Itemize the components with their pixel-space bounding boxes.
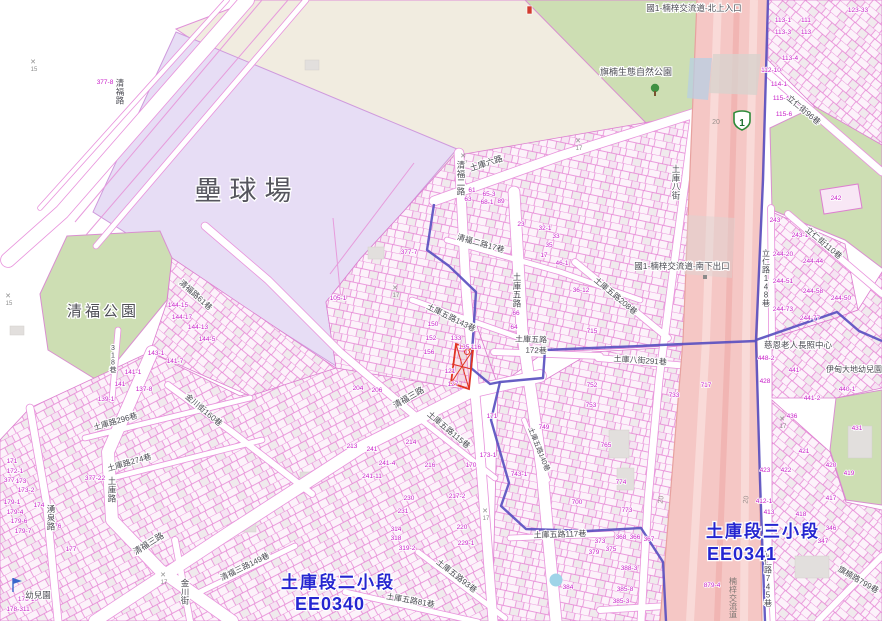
parcel-number: 448-2 bbox=[758, 355, 775, 362]
street-label-vertical: 清福二路 bbox=[457, 160, 466, 197]
map-container: 1202020楠梓交流道377-8113-1111113-3113113-411… bbox=[0, 0, 882, 621]
parcel-number: 418 bbox=[796, 511, 807, 518]
parcel-number: 171 bbox=[7, 458, 18, 465]
parcel-number: 32-1 bbox=[538, 225, 551, 232]
parcel-number: 220 bbox=[457, 524, 468, 531]
street-label-vertical: 湧泉路 bbox=[47, 504, 56, 532]
parcel-number: 368 bbox=[616, 534, 627, 541]
parcel-number: 173-2 bbox=[18, 487, 35, 494]
parcel-number: 229-1 bbox=[458, 540, 475, 547]
parcel-number: 243 bbox=[770, 217, 781, 224]
parcel-number: 765 bbox=[601, 442, 612, 449]
parcel-number: 428 bbox=[760, 378, 771, 385]
parcel-number: 749 bbox=[539, 424, 550, 431]
parcel-number: 141-7 bbox=[167, 358, 184, 365]
parcel-number: 373 bbox=[595, 538, 606, 545]
parcel-number: 423 bbox=[760, 467, 771, 474]
parcel-number: 385-3 bbox=[613, 598, 630, 605]
parcel-number: 422 bbox=[781, 467, 792, 474]
parcel-number: 179-6 bbox=[11, 518, 28, 525]
parcel-number: 377-7 bbox=[401, 249, 418, 256]
parcel-number: 66 bbox=[512, 310, 520, 317]
parcel-number: 244-58 bbox=[803, 288, 824, 295]
parcel-number: 173-1 bbox=[480, 452, 497, 459]
parcel-number: 17 bbox=[540, 252, 548, 259]
parcel-number: 733 bbox=[669, 392, 680, 399]
parcel-number: 178-311 bbox=[6, 606, 30, 613]
parcel-number: 879-4 bbox=[704, 582, 721, 589]
parcel-number: 419 bbox=[844, 470, 855, 477]
parcel-number: 412-1 bbox=[756, 498, 773, 505]
poi-label: 國1-楠梓交流道-南下出口 bbox=[634, 261, 729, 271]
survey-mark-icon: ✕ bbox=[160, 572, 166, 579]
parcel-number: 431 bbox=[852, 425, 863, 432]
building-footprint bbox=[368, 247, 384, 259]
parcel-number: 144-5 bbox=[199, 336, 216, 343]
parcel-number: 436 bbox=[787, 413, 798, 420]
parcel-number: 743-1 bbox=[511, 471, 528, 478]
parcel-number: 36-12 bbox=[573, 287, 590, 294]
tree-trunk bbox=[654, 91, 656, 96]
survey-mark-icon: ✕ bbox=[482, 508, 488, 515]
parcel-number: 774 bbox=[616, 479, 627, 486]
road-width-label: 20 bbox=[742, 495, 750, 504]
parcel-number: 242 bbox=[831, 195, 842, 202]
parcel-number: 144-13 bbox=[188, 324, 209, 331]
parcel-number: 46-1 bbox=[555, 260, 568, 267]
parcel-number: 417 bbox=[826, 495, 837, 502]
parcel-number: 173 bbox=[16, 478, 27, 485]
parcel-number: 213 bbox=[347, 443, 358, 450]
parcel-number: 137-8 bbox=[136, 386, 153, 393]
parcel-number: 89 bbox=[497, 198, 505, 205]
parcel-number: 375 bbox=[606, 546, 617, 553]
parcel-number: 244-44 bbox=[803, 258, 824, 265]
parcel-number: 35 bbox=[545, 242, 553, 249]
building-footprint bbox=[10, 326, 24, 335]
parcel-number: 152 bbox=[426, 335, 437, 342]
parcel-number: 23 bbox=[517, 221, 525, 228]
street-label-vertical: 土庫八街 bbox=[672, 164, 681, 201]
road-width-label: 20 bbox=[657, 495, 665, 504]
parcel-number: 241-11 bbox=[362, 473, 382, 480]
survey-mark-number: 17 bbox=[161, 580, 168, 586]
parcel-number: 440-1 bbox=[839, 386, 856, 393]
street-label: 土庫五路117巷 bbox=[533, 528, 586, 540]
parcel-number: 319-2 bbox=[399, 545, 416, 552]
section-code: EE0341 bbox=[707, 544, 777, 564]
parcel-number: 113-3 bbox=[775, 29, 792, 36]
overpass-patch bbox=[709, 54, 761, 95]
parcel-number: 379 bbox=[589, 549, 600, 556]
survey-mark-number: 15 bbox=[31, 67, 38, 73]
parcel-number: 206 bbox=[372, 387, 383, 394]
parcel-number: 753 bbox=[586, 402, 597, 409]
survey-mark-icon: ✕ bbox=[575, 138, 581, 145]
highway-number: 1 bbox=[739, 118, 745, 129]
poi-label: 慈恩老人長照中心 bbox=[764, 340, 833, 350]
parcel-number: 441-2 bbox=[804, 395, 821, 402]
survey-mark-number: 17 bbox=[393, 293, 400, 299]
parcel-number: 385-8 bbox=[617, 586, 634, 593]
landmark-icon bbox=[527, 6, 532, 14]
parcel-number: 346 bbox=[826, 525, 837, 532]
poi-label: 幼兒園 bbox=[25, 590, 51, 600]
tree-icon bbox=[651, 84, 659, 92]
parcel-number: 111 bbox=[801, 17, 811, 24]
poi-label: 伊甸大地幼兒園 bbox=[826, 364, 882, 374]
street-label-vertical: 土庫路 bbox=[108, 476, 117, 504]
parcel-number: 700 bbox=[572, 499, 583, 506]
parcel-number: 214 bbox=[406, 439, 417, 446]
parcel-number: 388-3 bbox=[621, 565, 638, 572]
parcel-number: 715 bbox=[587, 328, 598, 335]
parcel-number: 717 bbox=[701, 382, 712, 389]
parcel-number: 141 bbox=[115, 381, 126, 388]
survey-mark-number: 15 bbox=[6, 301, 13, 307]
parcel-number: 230 bbox=[404, 495, 415, 502]
poi-label: 國1-楠梓交流道-北上入口 bbox=[646, 3, 741, 13]
parcel-number: 384 bbox=[563, 584, 574, 591]
parcel-number: 177 bbox=[66, 546, 77, 553]
parcel-number: 139-1 bbox=[98, 396, 115, 403]
survey-mark-number: 17 bbox=[780, 424, 787, 430]
parcel-number: 174 bbox=[34, 502, 45, 509]
section-title: 土庫段三小段 bbox=[706, 521, 820, 541]
parcel-number: 113-1 bbox=[775, 17, 792, 24]
parcel-number: 112-10 bbox=[761, 67, 781, 74]
parcel-number: 156 bbox=[424, 349, 435, 356]
street-label: 土庫五路 bbox=[515, 333, 547, 344]
section-title: 土庫段二小段 bbox=[281, 572, 395, 592]
parcel-number: 105-1 bbox=[330, 295, 347, 302]
parcel-number: 244-51 bbox=[773, 278, 794, 285]
parcel-number: 413 bbox=[764, 509, 775, 516]
parcel-number: 172-1 bbox=[7, 468, 24, 475]
parcel-number: 241 bbox=[367, 446, 378, 453]
parcel-number: 773 bbox=[622, 507, 633, 514]
parcel-number: 179-4 bbox=[7, 509, 24, 516]
parcel-number: 314 bbox=[391, 526, 402, 533]
survey-mark-number: 17 bbox=[483, 516, 490, 522]
area-label: 清福公園 bbox=[67, 303, 139, 320]
street-label: 172巷 bbox=[525, 346, 547, 356]
parcel-number: 141-1 bbox=[125, 369, 142, 376]
parcel-number: 752 bbox=[587, 382, 598, 389]
overpass-patch bbox=[687, 58, 712, 100]
parcel-number: 115-6 bbox=[776, 111, 793, 118]
parcel-number: 204 bbox=[353, 385, 364, 392]
section-code: EE0340 bbox=[295, 594, 365, 614]
liren-rd-lane148 bbox=[771, 208, 772, 340]
parcel-number: 68-1 bbox=[480, 199, 493, 206]
parcel-number: 377-22 bbox=[85, 475, 106, 482]
parcel-number: 123-33 bbox=[848, 7, 869, 14]
parcel-number: 318 bbox=[391, 535, 402, 542]
parcel-number: 135 bbox=[459, 344, 470, 351]
survey-mark-number: 17 bbox=[576, 146, 583, 152]
parcel-number: 116 bbox=[471, 344, 482, 351]
parcel-number: 377-8 bbox=[97, 79, 114, 86]
parcel-number: 244-73 bbox=[773, 306, 794, 313]
survey-mark-icon: ✕ bbox=[30, 59, 36, 66]
map-canvas[interactable]: 1202020楠梓交流道377-8113-1111113-3113113-411… bbox=[0, 0, 882, 621]
parcel-number: 144-17 bbox=[172, 314, 193, 321]
parcel-number: 33 bbox=[552, 233, 560, 240]
parcel-number: 150 bbox=[428, 321, 439, 328]
survey-mark-icon: ✕ bbox=[460, 153, 466, 160]
parcel-number: 244-77 bbox=[800, 315, 821, 322]
interchange-vertical-label: 楠梓交流道 bbox=[729, 576, 737, 620]
parcel-number: 179-7 bbox=[15, 528, 32, 535]
parcel-number: 217-2 bbox=[449, 493, 466, 500]
parcel-number: 171 bbox=[487, 413, 498, 420]
street-label-vertical: 金川街 bbox=[181, 578, 190, 606]
parcel-number: 127 bbox=[448, 381, 459, 388]
cadastral-map[interactable]: 1202020楠梓交流道377-8113-1111113-3113113-411… bbox=[0, 0, 882, 621]
poi-label: 旗楠生態自然公園 bbox=[600, 66, 672, 77]
parcel-number: 244-50 bbox=[831, 295, 852, 302]
parcel-number: 216 bbox=[425, 462, 436, 469]
parcel-number: 367 bbox=[644, 536, 655, 543]
area-label: 壘球場 bbox=[195, 176, 300, 206]
building-footprint bbox=[795, 556, 829, 578]
parcel-number: 61 bbox=[468, 187, 476, 194]
survey-mark-icon: ✕ bbox=[392, 285, 398, 292]
parcel-number: 179-1 bbox=[4, 499, 21, 506]
parcel-number: 441 bbox=[789, 367, 800, 374]
building-footprint bbox=[609, 430, 629, 458]
parcel-number: 113-4 bbox=[782, 55, 799, 62]
parcel-number: 114-1 bbox=[771, 81, 788, 88]
survey-mark-icon: ✕ bbox=[5, 293, 11, 300]
parcel-number: 143-1 bbox=[148, 350, 165, 357]
street-label-vertical: 清福路 bbox=[116, 78, 125, 106]
parcel-number: 121 bbox=[445, 368, 456, 375]
road-width-label: 20 bbox=[712, 119, 720, 126]
parcel-number: 65-3 bbox=[482, 191, 495, 198]
exit-point-dot bbox=[703, 275, 707, 279]
parcel-number: 241-4 bbox=[379, 460, 396, 467]
parcel-number: 420 bbox=[826, 462, 837, 469]
parcel-number: 366 bbox=[630, 534, 641, 541]
pond bbox=[550, 574, 563, 587]
parcel-number: 144-15 bbox=[168, 302, 189, 309]
parcel-number: 170 bbox=[466, 462, 477, 469]
parcel-number: 133 bbox=[451, 335, 462, 342]
parcel-number: 421 bbox=[799, 448, 810, 455]
building-footprint bbox=[305, 60, 319, 70]
parcel-number: 113 bbox=[801, 29, 812, 36]
survey-mark-icon: ✕ bbox=[779, 416, 785, 423]
parcel-number: 63 bbox=[464, 196, 472, 203]
parcel-number: 64 bbox=[510, 324, 518, 331]
street-label-vertical: 土庫五路 bbox=[513, 272, 522, 309]
parcel-number: 231 bbox=[398, 508, 409, 515]
tuku-5th-lane172 bbox=[494, 352, 600, 356]
parcel-number: 244-20 bbox=[773, 251, 794, 258]
